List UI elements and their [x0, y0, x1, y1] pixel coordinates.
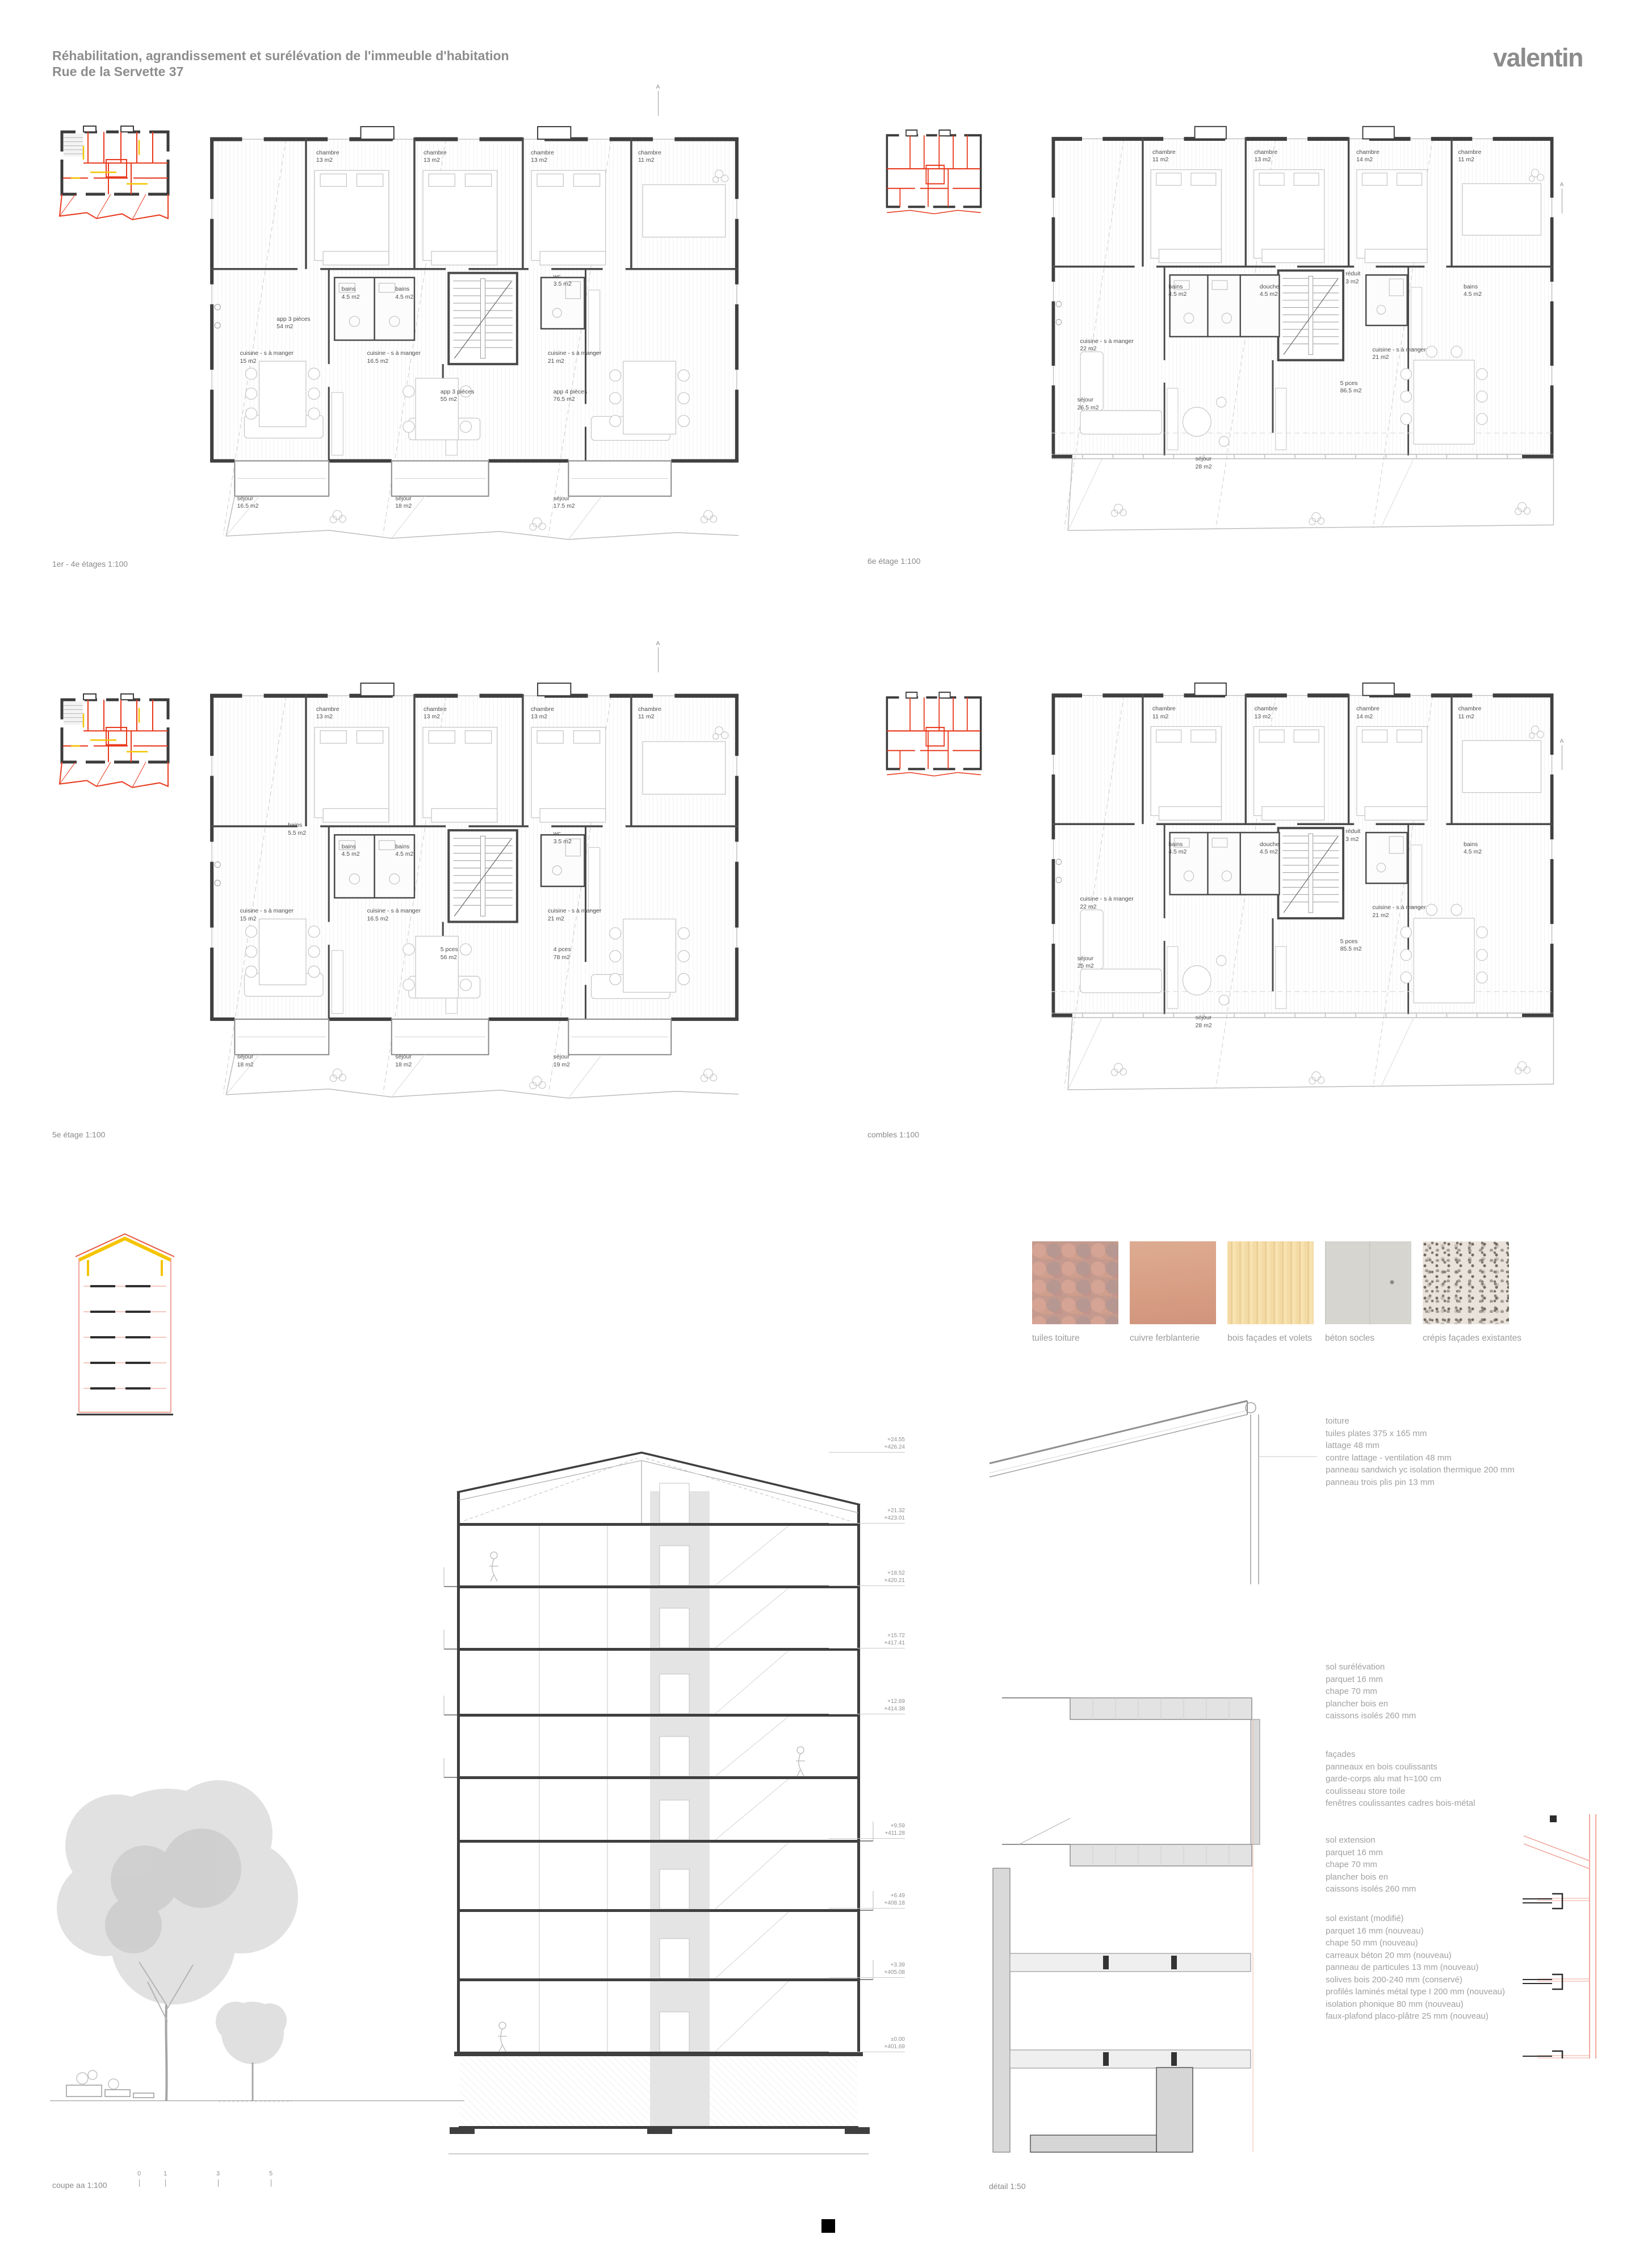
- room-label: bains 4.5 m2: [1168, 841, 1187, 856]
- detail-drawing: [985, 1388, 1317, 2161]
- room-label: douche 4.5 m2: [1260, 841, 1279, 856]
- elevation-marker: +12.69 +414.38: [829, 1698, 905, 1714]
- material-label: crépis façades existantes: [1423, 1333, 1521, 1344]
- material-label: béton socles: [1325, 1333, 1374, 1344]
- presentation-board: { "header": { "title_line1": "Réhabilita…: [0, 0, 1635, 2268]
- plan-1-caption: 1er - 4e étages 1:100: [52, 559, 128, 568]
- section-cut-marker: A: [653, 641, 663, 672]
- scale-tick: 5: [265, 2170, 277, 2187]
- room-label: wc 3.5 m2: [554, 830, 572, 846]
- room-label: bains 5.5 m2: [288, 822, 306, 837]
- room-label: chambre 11 m2: [1458, 149, 1482, 164]
- room-label: 5 pces 86.5 m2: [1340, 380, 1362, 395]
- room-label: séjour 25 m2: [1078, 955, 1094, 970]
- room-label: app 4 pièces 76.5 m2: [554, 388, 588, 404]
- room-label: séjour 18 m2: [237, 1053, 254, 1069]
- room-label: 5 pces 56 m2: [441, 946, 458, 961]
- room-label: chambre 11 m2: [1152, 705, 1176, 721]
- room-label: chambre 13 m2: [1254, 149, 1277, 164]
- section-cut-marker: A: [1557, 738, 1567, 770]
- room-label: chambre 13 m2: [531, 149, 554, 165]
- room-label: wc 3.5 m2: [554, 273, 572, 288]
- room-label: 4 pces 78 m2: [554, 946, 571, 961]
- room-label: séjour 17.5 m2: [554, 495, 575, 510]
- scale-tick: 0: [133, 2170, 145, 2187]
- elevation-marker: +24.55 +426.24: [829, 1437, 905, 1453]
- room-label: chambre 13 m2: [1254, 705, 1277, 721]
- detail-caption: détail 1:50: [989, 2182, 1026, 2191]
- section-cut-marker: A: [1557, 182, 1567, 214]
- room-label: séjour 18 m2: [395, 495, 412, 510]
- room-label: cuisine - s à manger 22 m2: [1080, 338, 1134, 353]
- material-label: tuiles toiture: [1032, 1333, 1080, 1344]
- floor-plan-2: chambre 11 m2chambre 13 m2chambre 14 m2c…: [1034, 119, 1571, 539]
- annotation-sol-existant: sol existant (modifié) parquet 16 mm (no…: [1326, 1913, 1635, 2023]
- room-label: chambre 13 m2: [424, 149, 447, 165]
- scale-tick: 3: [212, 2170, 224, 2187]
- room-label: séjour 18 m2: [395, 1053, 412, 1069]
- room-label: séjour 28 m2: [1196, 1014, 1212, 1030]
- material-label: bois façades et volets: [1227, 1333, 1312, 1344]
- floor-plan-3: chambre 13 m2chambre 13 m2chambre 13 m2c…: [192, 676, 757, 1105]
- room-label: bains 4.5 m2: [342, 843, 360, 859]
- board-mark: [821, 2219, 835, 2233]
- room-label: chambre 13 m2: [316, 706, 339, 721]
- material-label: cuivre ferblanterie: [1130, 1333, 1200, 1344]
- plan-2-room-labels: chambre 11 m2chambre 13 m2chambre 14 m2c…: [1034, 119, 1571, 539]
- elevation-marker: +3.39 +405.08: [829, 1962, 905, 1978]
- room-label: chambre 11 m2: [638, 149, 661, 165]
- floor-plan-1: chambre 13 m2chambre 13 m2chambre 13 m2c…: [192, 119, 757, 546]
- room-label: chambre 11 m2: [1458, 705, 1482, 721]
- room-label: app 3 pièces 55 m2: [441, 388, 475, 404]
- room-label: séjour 28 m2: [1196, 455, 1212, 471]
- room-label: cuisine - s à manger 16.5 m2: [367, 350, 421, 365]
- room-label: cuisine - s à manger 15 m2: [240, 350, 294, 365]
- floor-plan-4: chambre 11 m2chambre 13 m2chambre 14 m2c…: [1034, 676, 1571, 1099]
- room-label: bains 4.5 m2: [1464, 841, 1482, 856]
- annotation-facades: façades panneaux en bois coulissants gar…: [1326, 1748, 1635, 1810]
- elevation-marker: +18.52 +420.21: [829, 1570, 905, 1586]
- material-swatch-render: [1423, 1241, 1509, 1324]
- key-plan-2: [880, 126, 988, 233]
- planter-drawing: [65, 2061, 179, 2104]
- room-label: chambre 14 m2: [1356, 149, 1380, 164]
- elevation-marker: +9.59 +411.28: [829, 1823, 905, 1839]
- key-plan-1: [54, 123, 176, 229]
- annotation-sol-surelevation: sol surélévation parquet 16 mm chape 70 …: [1326, 1661, 1635, 1722]
- room-label: cuisine - s à manger 15 m2: [240, 907, 294, 923]
- room-label: cuisine - s à manger 16.5 m2: [367, 907, 421, 923]
- title-line-2: Rue de la Servette 37: [52, 64, 509, 79]
- title-line-1: Réhabilitation, agrandissement et surélé…: [52, 48, 509, 64]
- tree-drawing: [31, 1738, 338, 2112]
- elevation-marker: ±0.00 +401.69: [829, 2036, 905, 2052]
- plan-3-caption: 5e étage 1:100: [52, 1130, 105, 1139]
- material-swatch-copper: [1130, 1241, 1216, 1324]
- room-label: chambre 11 m2: [638, 706, 661, 721]
- room-label: cuisine - s à manger 21 m2: [1372, 346, 1426, 362]
- room-label: douche 4.5 m2: [1260, 283, 1279, 299]
- section-key-diagram: [71, 1224, 179, 1422]
- room-label: bains 4.5 m2: [342, 286, 360, 301]
- plan-4-caption: combles 1:100: [867, 1130, 919, 1139]
- section-drawing: [437, 1447, 880, 2202]
- room-label: bains 4.5 m2: [395, 286, 413, 301]
- elevation-marker: +15.72 +417.41: [829, 1633, 905, 1648]
- room-label: chambre 13 m2: [531, 706, 554, 721]
- annotation-toiture: toiture tuiles plates 375 x 165 mm latta…: [1326, 1415, 1635, 1488]
- key-plan-3: [54, 691, 176, 797]
- room-label: chambre 13 m2: [424, 706, 447, 721]
- room-label: séjour 26.5 m2: [1078, 396, 1099, 412]
- room-label: chambre 13 m2: [316, 149, 339, 165]
- annotation-sol-extension: sol extension parquet 16 mm chape 70 mm …: [1326, 1834, 1635, 1895]
- room-label: bains 4.5 m2: [1464, 283, 1482, 299]
- studio-logo: valentin: [1493, 43, 1583, 73]
- elevation-marker: +6.49 +408.18: [829, 1893, 905, 1909]
- room-label: app 3 pièces 54 m2: [276, 316, 311, 331]
- room-label: séjour 19 m2: [554, 1053, 570, 1069]
- room-label: chambre 11 m2: [1152, 149, 1176, 164]
- room-label: 5 pces 85.5 m2: [1340, 938, 1362, 953]
- elevation-marker: +21.32 +423.01: [829, 1508, 905, 1524]
- room-label: réduit 3 m2: [1345, 270, 1360, 286]
- material-swatch-concrete: [1325, 1241, 1411, 1324]
- scale-tick: 1: [159, 2170, 171, 2187]
- room-label: cuisine - s à manger 21 m2: [548, 350, 602, 365]
- room-label: réduit 3 m2: [1345, 828, 1360, 843]
- room-label: séjour 16.5 m2: [237, 495, 259, 510]
- section-cut-marker: A: [653, 84, 663, 116]
- material-swatch-tiles: [1032, 1241, 1118, 1324]
- room-label: bains 4.5 m2: [395, 843, 413, 859]
- plan-4-room-labels: chambre 11 m2chambre 13 m2chambre 14 m2c…: [1034, 676, 1571, 1099]
- section-caption: coupe aa 1:100: [52, 2181, 107, 2190]
- room-label: cuisine - s à manger 21 m2: [1372, 904, 1426, 919]
- plan-2-caption: 6e étage 1:100: [867, 556, 920, 566]
- room-label: cuisine - s à manger 21 m2: [548, 907, 602, 923]
- room-label: cuisine - s à manger 22 m2: [1080, 896, 1134, 911]
- room-label: bains 4.5 m2: [1168, 283, 1187, 299]
- material-swatch-wood: [1227, 1241, 1314, 1324]
- plan-1-room-labels: chambre 13 m2chambre 13 m2chambre 13 m2c…: [192, 119, 757, 546]
- page-title: Réhabilitation, agrandissement et surélé…: [52, 48, 509, 79]
- plan-3-room-labels: chambre 13 m2chambre 13 m2chambre 13 m2c…: [192, 676, 757, 1105]
- room-label: chambre 14 m2: [1356, 705, 1380, 721]
- key-plan-4: [880, 688, 988, 795]
